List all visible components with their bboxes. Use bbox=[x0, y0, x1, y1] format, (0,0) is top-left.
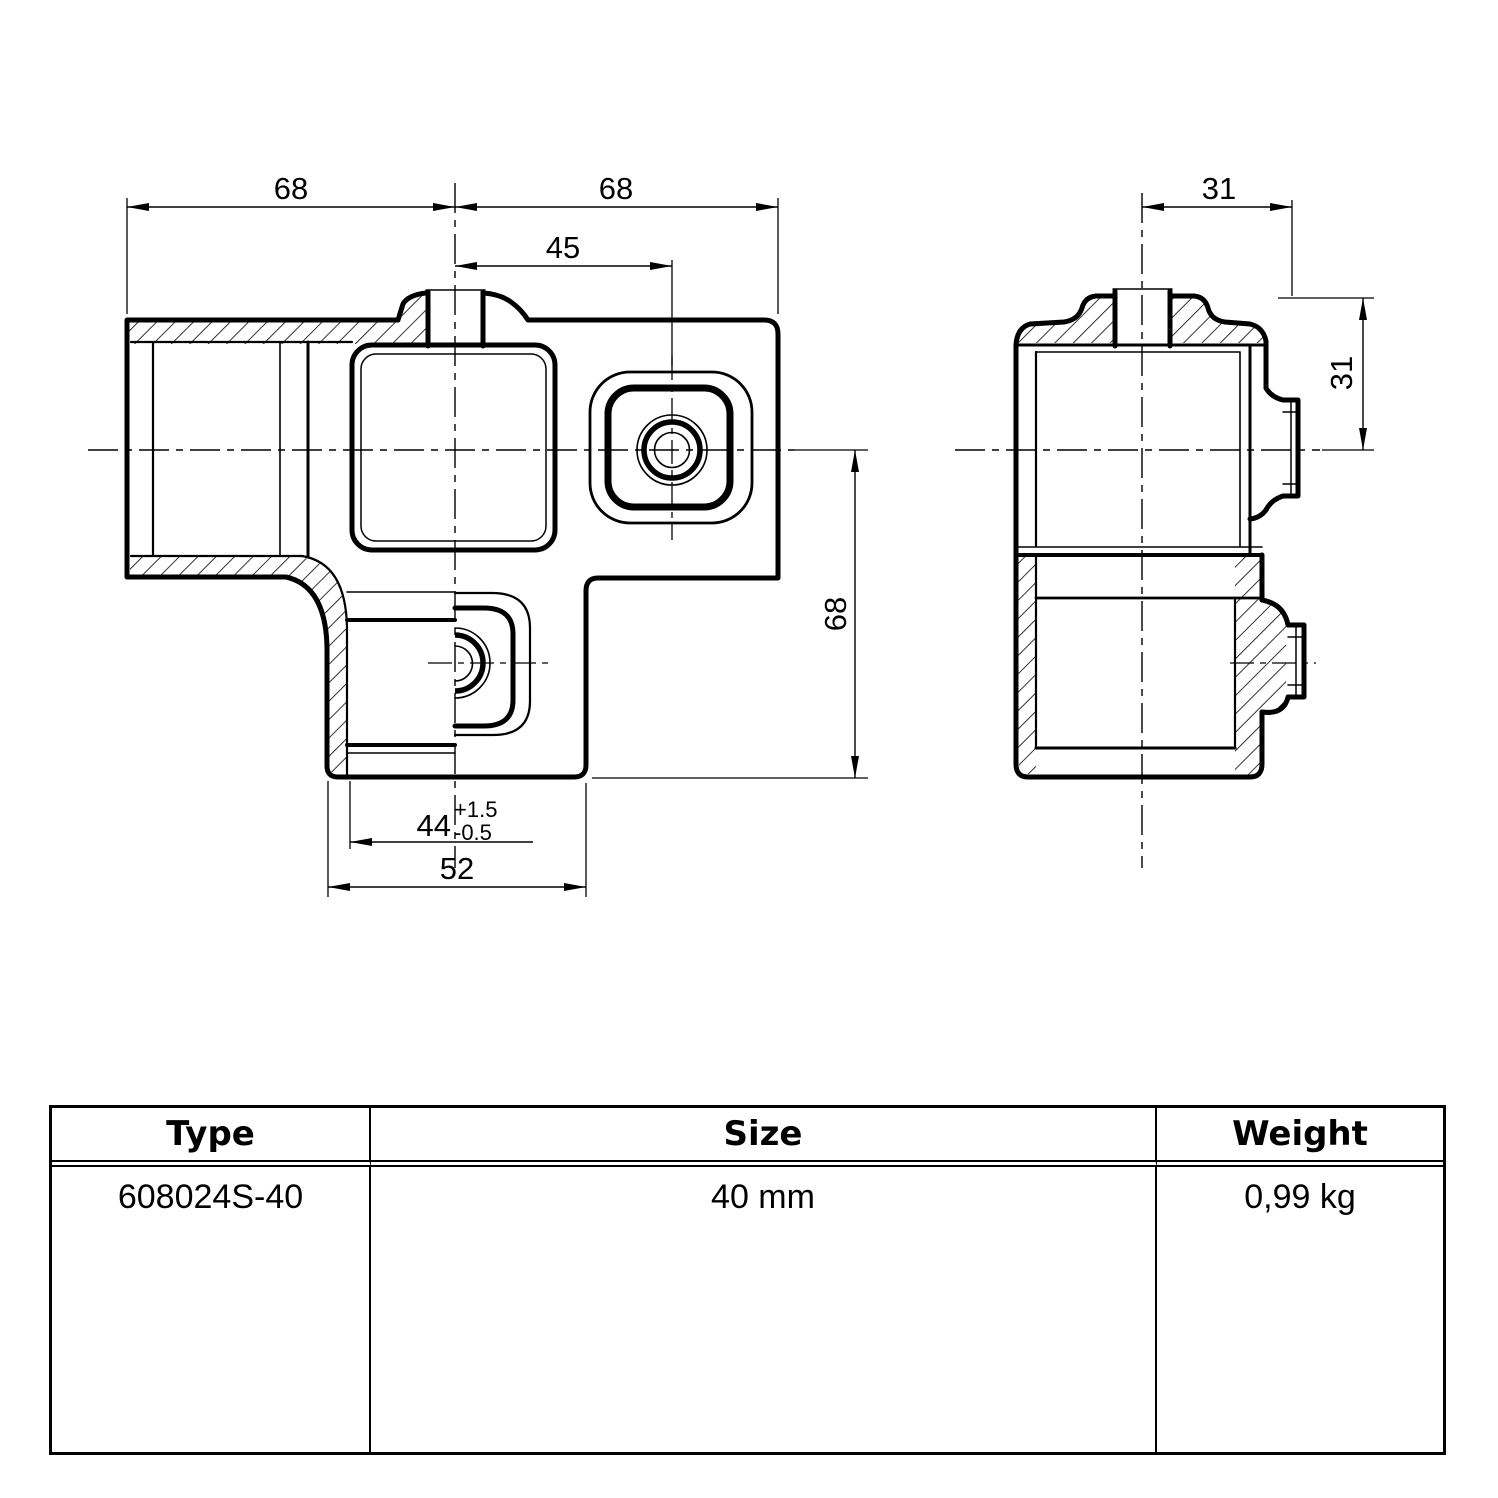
spec-table-cell-type: 608024S-40 bbox=[52, 1167, 371, 1452]
header-weight-label: Weight bbox=[1232, 1114, 1368, 1154]
front-right-socket-rim bbox=[608, 388, 730, 507]
front-tube-inner-lines bbox=[131, 342, 352, 556]
dim-side-half-width: 31 bbox=[1202, 171, 1236, 206]
dim-front-socket-width: 52 bbox=[440, 851, 474, 886]
dim-front-height: 68 bbox=[818, 597, 853, 631]
header-type-label: Type bbox=[166, 1114, 255, 1154]
dim-front-socket-offset: 45 bbox=[546, 230, 580, 265]
side-body-outline bbox=[1016, 345, 1262, 777]
header-size-label: Size bbox=[724, 1114, 803, 1154]
side-inner-walls bbox=[1036, 352, 1235, 748]
front-clamp-bore bbox=[352, 345, 555, 550]
spec-table: Type Size Weight 608024S-40 40 mm 0,99 k… bbox=[49, 1105, 1446, 1455]
front-dimensions: 68 68 45 68 44 +1.5 -0.5 52 bbox=[127, 171, 868, 897]
weight-value: 0,99 kg bbox=[1244, 1178, 1356, 1217]
front-view: 68 68 45 68 44 +1.5 -0.5 52 bbox=[88, 171, 868, 897]
spec-table-header-type: Type bbox=[52, 1108, 371, 1167]
dim-front-bore: 44 bbox=[417, 808, 451, 843]
spec-table-cell-size: 40 mm bbox=[371, 1167, 1157, 1452]
type-value: 608024S-40 bbox=[118, 1178, 303, 1217]
front-bottom-boss-outer bbox=[455, 593, 530, 735]
side-hatch-boss bbox=[1260, 601, 1286, 711]
dim-front-width-right: 68 bbox=[599, 171, 633, 206]
size-value: 40 mm bbox=[711, 1178, 815, 1217]
spec-table-header-size: Size bbox=[371, 1108, 1157, 1167]
technical-drawing-page: 68 68 45 68 44 +1.5 -0.5 52 bbox=[0, 0, 1498, 1498]
dim-front-width-left: 68 bbox=[274, 171, 308, 206]
spec-table-cell-weight: 0,99 kg bbox=[1157, 1167, 1443, 1452]
side-hatch-left-wall bbox=[1018, 557, 1036, 774]
front-outline bbox=[127, 293, 778, 777]
dim-front-bore-tol-plus: +1.5 bbox=[454, 797, 497, 822]
front-clamp-bore-inner bbox=[361, 354, 546, 541]
dim-side-boss-offset: 31 bbox=[1324, 356, 1359, 390]
side-view: 31 31 bbox=[955, 171, 1374, 868]
dim-front-bore-tol-minus: -0.5 bbox=[454, 820, 492, 845]
front-bottom-farwall-thin bbox=[347, 592, 455, 753]
front-bottom-farwall bbox=[347, 620, 455, 745]
spec-table-header-weight: Weight bbox=[1157, 1108, 1443, 1167]
side-hatch-right-wall bbox=[1235, 557, 1260, 775]
front-hatch-bottom-wall bbox=[130, 557, 346, 774]
